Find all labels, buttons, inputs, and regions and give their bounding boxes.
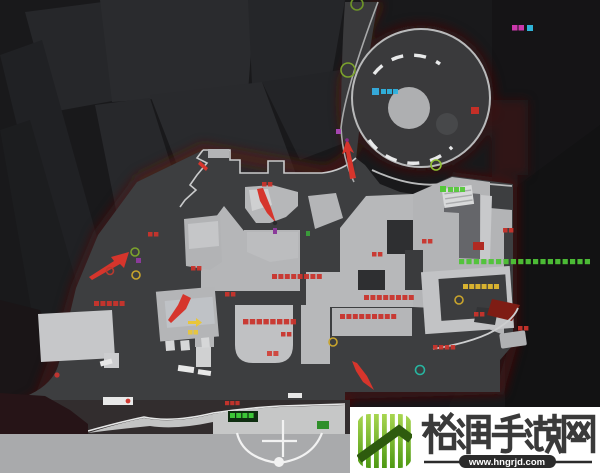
svg-text:www.hngrjd.com: www.hngrjd.com bbox=[468, 457, 545, 468]
